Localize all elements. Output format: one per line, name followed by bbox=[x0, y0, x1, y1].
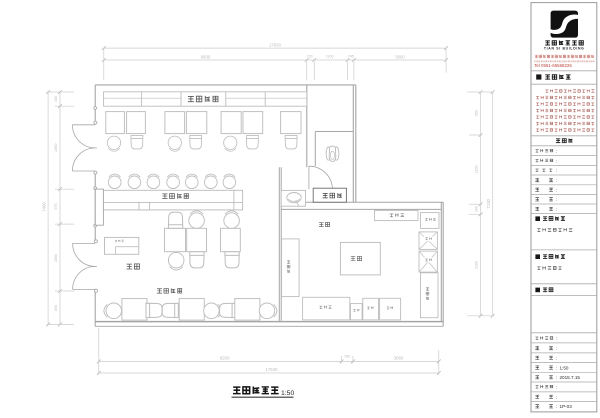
svg-text:1P-03: 1P-03 bbox=[560, 404, 573, 409]
svg-text::: : bbox=[556, 385, 557, 390]
svg-text:2160: 2160 bbox=[475, 166, 479, 174]
svg-text::: : bbox=[556, 375, 557, 380]
svg-text:17630: 17630 bbox=[266, 367, 279, 372]
svg-text:3060: 3060 bbox=[394, 355, 404, 360]
svg-text:650: 650 bbox=[54, 305, 58, 311]
svg-text:760: 760 bbox=[344, 355, 350, 359]
svg-text:650: 650 bbox=[475, 110, 479, 116]
svg-text:Tel 0551-65568226: Tel 0551-65568226 bbox=[534, 63, 572, 68]
svg-text:1:50: 1:50 bbox=[281, 390, 294, 397]
svg-text::: : bbox=[556, 395, 557, 400]
svg-text:3160: 3160 bbox=[475, 261, 479, 269]
svg-text:6830: 6830 bbox=[201, 55, 211, 60]
svg-text::: : bbox=[556, 188, 557, 193]
svg-text:17630: 17630 bbox=[269, 43, 282, 48]
svg-text:7130: 7130 bbox=[486, 199, 491, 209]
svg-text::: : bbox=[556, 365, 557, 370]
svg-text::: : bbox=[556, 346, 557, 351]
svg-text:480: 480 bbox=[54, 96, 58, 102]
svg-text:2015.7.15: 2015.7.15 bbox=[560, 375, 581, 380]
svg-text::: : bbox=[556, 336, 557, 341]
svg-text:8200: 8200 bbox=[220, 355, 230, 360]
svg-text::: : bbox=[556, 168, 557, 173]
svg-text::: : bbox=[556, 404, 557, 409]
svg-text:TIAN SI BUILDING: TIAN SI BUILDING bbox=[544, 46, 585, 50]
svg-text:300: 300 bbox=[475, 206, 479, 212]
svg-text:2860: 2860 bbox=[54, 254, 58, 262]
svg-text::: : bbox=[556, 178, 557, 183]
svg-text:2860: 2860 bbox=[54, 144, 58, 152]
svg-text:745: 745 bbox=[348, 55, 354, 59]
svg-text::: : bbox=[556, 197, 557, 202]
svg-text:730: 730 bbox=[307, 55, 313, 59]
svg-text::: : bbox=[556, 356, 557, 361]
svg-text::: : bbox=[556, 207, 557, 212]
svg-text::: : bbox=[556, 149, 557, 154]
svg-text:7460: 7460 bbox=[41, 202, 46, 212]
svg-text:1100: 1100 bbox=[326, 55, 334, 59]
svg-text:3060: 3060 bbox=[395, 55, 405, 60]
svg-text:575: 575 bbox=[54, 204, 58, 210]
svg-text::: : bbox=[556, 159, 557, 164]
svg-text:1:50: 1:50 bbox=[560, 365, 569, 370]
